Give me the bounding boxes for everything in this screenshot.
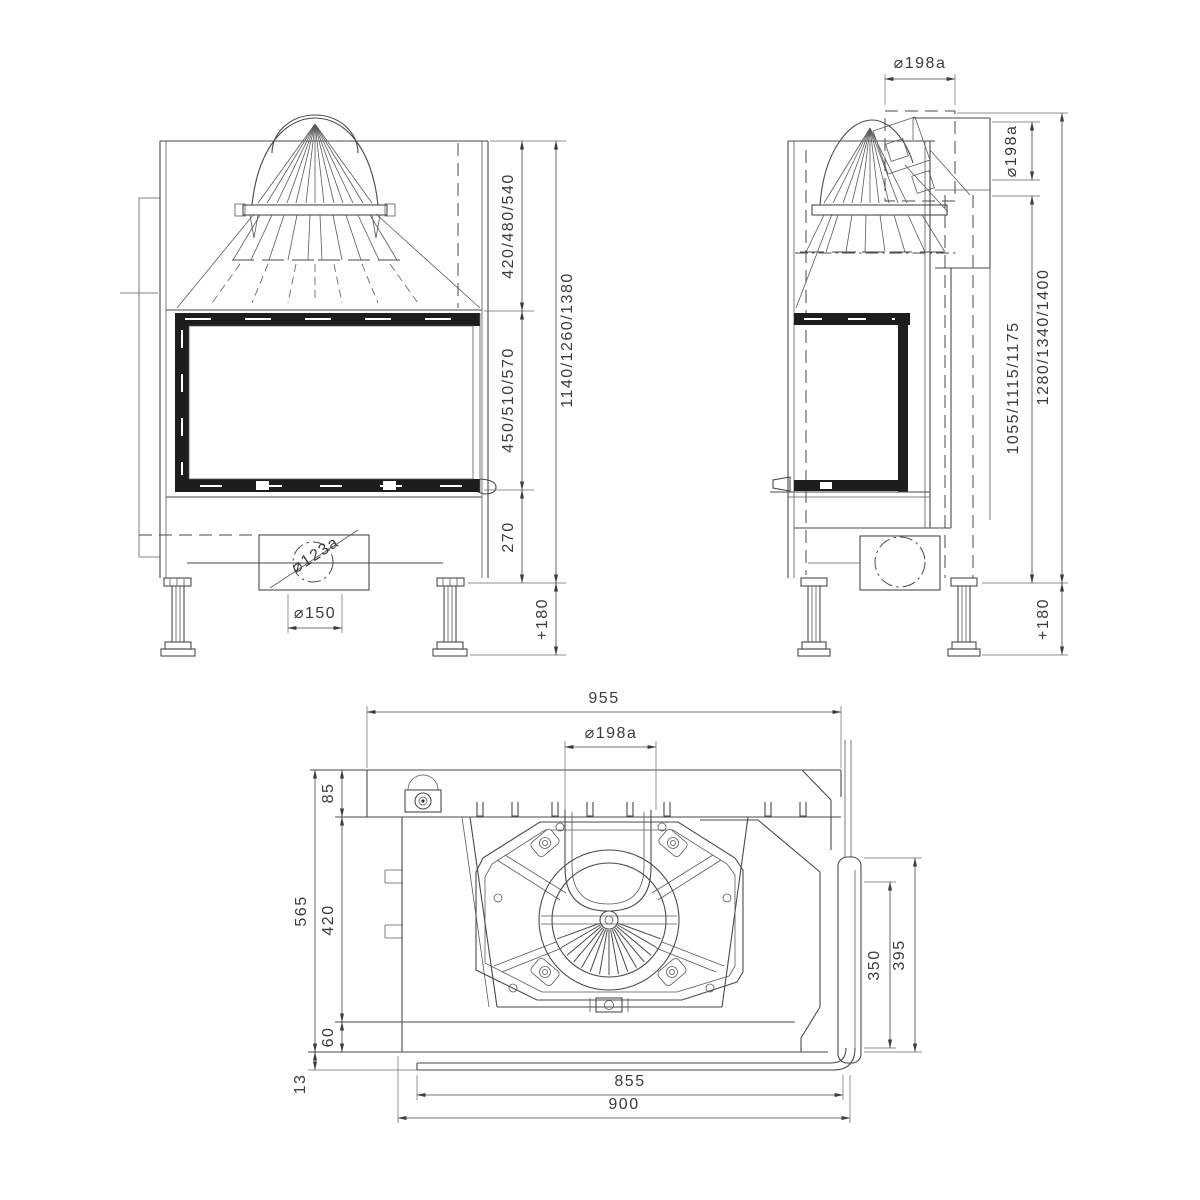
svg-text:⌀198a: ⌀198a bbox=[1003, 125, 1020, 178]
side-dimensions: ⌀198a ⌀198a 1055/1115/1175 1280/1340/140… bbox=[885, 55, 1068, 655]
svg-text:270: 270 bbox=[500, 521, 517, 552]
dim-overall-width: 955 bbox=[367, 690, 841, 712]
air-inlet-front: ⌀123a bbox=[259, 530, 369, 590]
plan-body bbox=[308, 740, 851, 1052]
svg-text:420/480/540: 420/480/540 bbox=[500, 173, 517, 278]
dim-front-window-height: 450/510/570 bbox=[500, 311, 522, 490]
svg-text:+180: +180 bbox=[1035, 598, 1052, 640]
damper-spokes bbox=[557, 923, 660, 975]
dim-air-spigot-label: ⌀123a bbox=[289, 534, 342, 577]
technical-drawing-page: ⌀123a 420/480/540 bbox=[0, 0, 1200, 1200]
svg-text:350: 350 bbox=[866, 949, 883, 980]
rear-strip-studs bbox=[477, 802, 806, 816]
dim-front-base-height: 270 bbox=[500, 490, 522, 583]
plan-view: 955 ⌀198a 85 420 60 565 bbox=[292, 690, 922, 1123]
front-view: ⌀123a 420/480/540 bbox=[120, 115, 576, 656]
side-view: ⌀198a ⌀198a 1055/1115/1175 1280/1340/140… bbox=[770, 55, 1068, 656]
front-hood bbox=[177, 143, 480, 308]
dim-side-legs: +180 bbox=[1035, 583, 1062, 655]
dim-side-glass-outer: 395 bbox=[891, 858, 915, 1052]
dim-plan-flue: ⌀198a bbox=[565, 725, 656, 747]
dim-front-legs: +180 bbox=[534, 583, 556, 655]
firebox-window bbox=[166, 313, 496, 497]
dim-flue-top: ⌀198a bbox=[885, 55, 955, 105]
fireplace-drawing: ⌀123a 420/480/540 bbox=[0, 0, 1200, 1200]
svg-text:855: 855 bbox=[614, 1073, 645, 1090]
svg-text:⌀198a: ⌀198a bbox=[894, 55, 947, 72]
dim-front-hood-height: 420/480/540 bbox=[500, 141, 522, 311]
svg-text:955: 955 bbox=[588, 690, 619, 707]
svg-text:13: 13 bbox=[292, 1074, 309, 1095]
dim-air-duct: ⌀150 bbox=[288, 594, 342, 633]
dim-glass-offset: 13 bbox=[292, 1052, 315, 1094]
svg-text:1280/1340/1400: 1280/1340/1400 bbox=[1035, 269, 1052, 406]
svg-text:900: 900 bbox=[608, 1096, 639, 1113]
svg-text:450/510/570: 450/510/570 bbox=[500, 347, 517, 452]
svg-text:85: 85 bbox=[320, 783, 337, 804]
svg-text:⌀150: ⌀150 bbox=[294, 605, 336, 622]
dim-front-total-height: 1140/1260/1380 bbox=[556, 141, 576, 583]
dim-front-width: 900 bbox=[398, 1096, 850, 1118]
svg-text:⌀198a: ⌀198a bbox=[585, 725, 638, 742]
dim-flue-rear: ⌀198a bbox=[1003, 122, 1032, 180]
side-body bbox=[788, 141, 990, 578]
dim-side-glass-inner: 350 bbox=[866, 882, 890, 1048]
svg-text:60: 60 bbox=[320, 1027, 337, 1048]
damper-mechanism bbox=[476, 822, 743, 1012]
flue-tube-plan bbox=[565, 810, 651, 911]
dim-rear-depth: 85 bbox=[320, 770, 342, 817]
svg-text:420: 420 bbox=[320, 904, 337, 935]
flue-dome-side bbox=[795, 111, 970, 253]
svg-text:395: 395 bbox=[891, 939, 908, 970]
plan-dimensions: 955 ⌀198a 85 420 60 565 bbox=[292, 690, 922, 1123]
dim-side-total-height: 1280/1340/1400 bbox=[1035, 113, 1062, 583]
svg-text:+180: +180 bbox=[534, 598, 551, 640]
flue-dome-front bbox=[212, 115, 418, 303]
dim-overall-depth: 565 bbox=[293, 770, 315, 1052]
dim-glass-width: 855 bbox=[417, 1073, 843, 1095]
dim-front-depth: 60 bbox=[320, 1022, 342, 1052]
svg-text:1055/1115/1175: 1055/1115/1175 bbox=[1005, 321, 1022, 454]
plan-rear-strip bbox=[310, 770, 841, 817]
svg-text:1140/1260/1380: 1140/1260/1380 bbox=[559, 272, 576, 407]
air-inlet-side bbox=[808, 536, 940, 590]
svg-text:565: 565 bbox=[293, 895, 310, 926]
dim-rear-outlet-height: 1055/1115/1175 bbox=[1005, 196, 1032, 583]
dim-chamber-depth: 420 bbox=[320, 817, 342, 1022]
front-dimensions: 420/480/540 450/510/570 270 1140/1260/13… bbox=[288, 141, 576, 655]
